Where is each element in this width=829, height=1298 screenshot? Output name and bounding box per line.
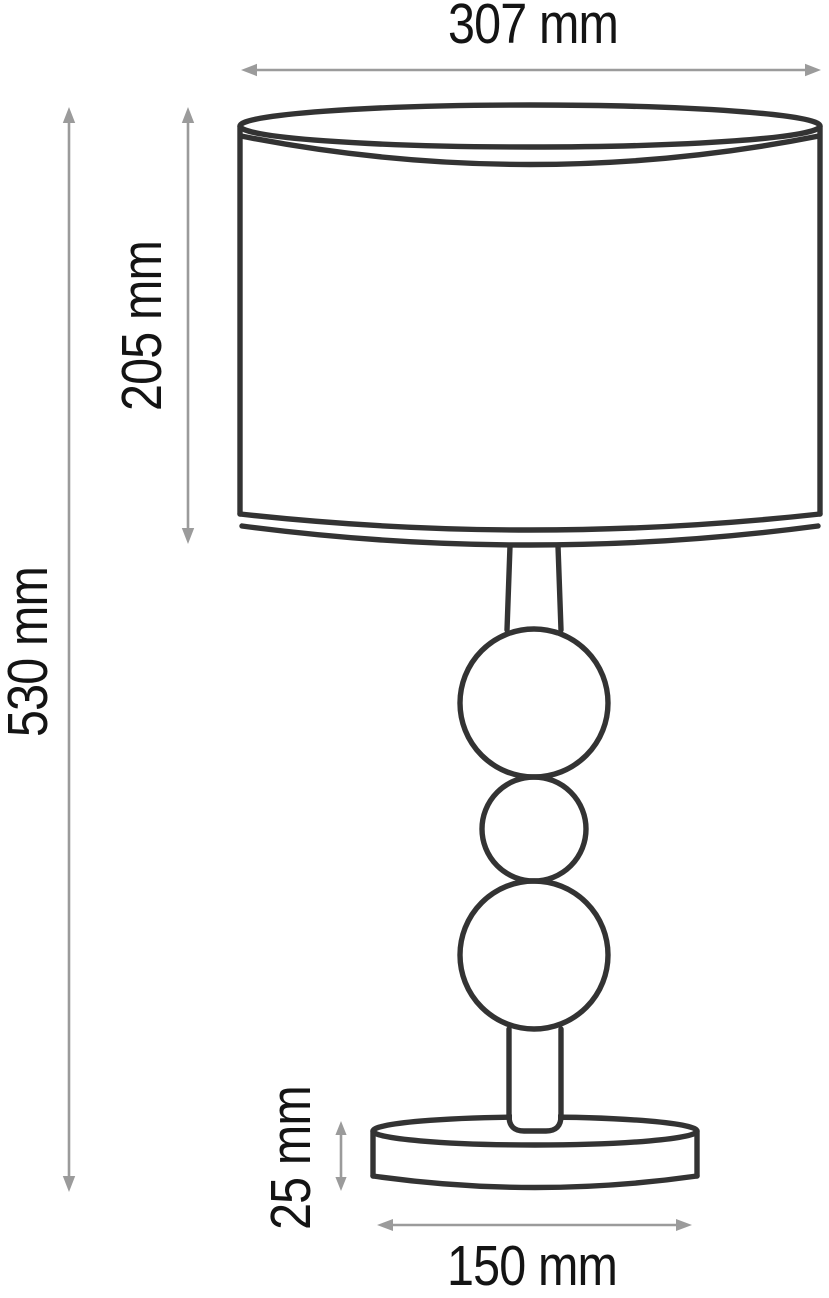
base-bottom-edge bbox=[373, 1176, 697, 1188]
base-diameter-label: 150 mm bbox=[447, 1233, 617, 1298]
total-height-label: 530 mm bbox=[0, 567, 61, 737]
arrowhead-left-icon bbox=[377, 1219, 393, 1231]
lamp-stem-upper bbox=[507, 546, 561, 630]
arrowhead-down-icon bbox=[182, 528, 194, 544]
arrowhead-up-icon bbox=[182, 107, 194, 123]
arrowhead-right-icon bbox=[805, 64, 821, 76]
lamp-dimension-diagram: 307 mm 205 mm 530 mm 25 mm 150 mm bbox=[0, 0, 829, 1298]
shade-width-label: 307 mm bbox=[448, 0, 618, 57]
lamp-shade bbox=[240, 105, 820, 545]
shade-height-label: 205 mm bbox=[109, 241, 175, 411]
arrowhead-left-icon bbox=[241, 64, 257, 76]
arrowhead-right-icon bbox=[676, 1219, 692, 1231]
lamp-base bbox=[373, 1029, 697, 1188]
dim-arrow-shade-width bbox=[241, 64, 821, 76]
stem-ball-middle bbox=[482, 777, 586, 881]
stem-ball-bottom bbox=[460, 881, 608, 1029]
arrowhead-up-icon bbox=[335, 1121, 346, 1135]
stem-ball-top bbox=[460, 629, 608, 777]
dim-arrow-total-height bbox=[63, 107, 75, 1192]
arrowhead-down-icon bbox=[335, 1177, 346, 1191]
stem-base-mask bbox=[512, 1106, 558, 1130]
dimension-lines bbox=[63, 64, 821, 1231]
dim-arrow-base-diameter bbox=[377, 1219, 692, 1231]
dim-arrow-base-height bbox=[335, 1121, 346, 1191]
shade-bottom-rim bbox=[240, 514, 820, 530]
lamp-outline bbox=[240, 105, 820, 1188]
shade-top-rim bbox=[240, 105, 820, 147]
base-height-label: 25 mm bbox=[258, 1086, 324, 1230]
dim-arrow-shade-height bbox=[182, 107, 194, 544]
arrowhead-down-icon bbox=[63, 1176, 75, 1192]
arrowhead-up-icon bbox=[63, 107, 75, 123]
diagram-canvas bbox=[0, 0, 829, 1298]
